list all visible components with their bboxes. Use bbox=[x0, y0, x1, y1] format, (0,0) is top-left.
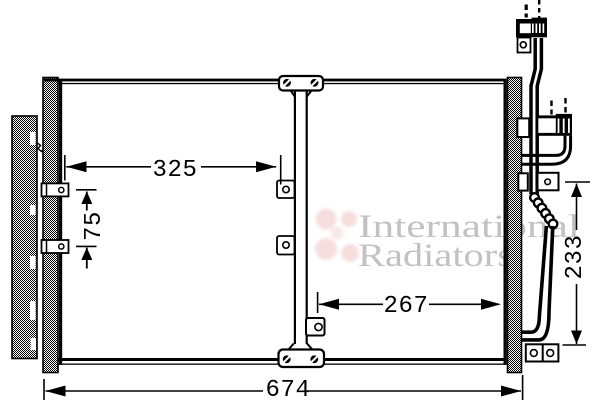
svg-text:267: 267 bbox=[383, 293, 428, 320]
svg-text:Radiators: Radiators bbox=[358, 238, 513, 274]
svg-text:674: 674 bbox=[265, 377, 310, 400]
svg-text:75: 75 bbox=[81, 211, 108, 241]
svg-text:325: 325 bbox=[152, 157, 197, 184]
svg-text:233: 233 bbox=[562, 234, 589, 279]
